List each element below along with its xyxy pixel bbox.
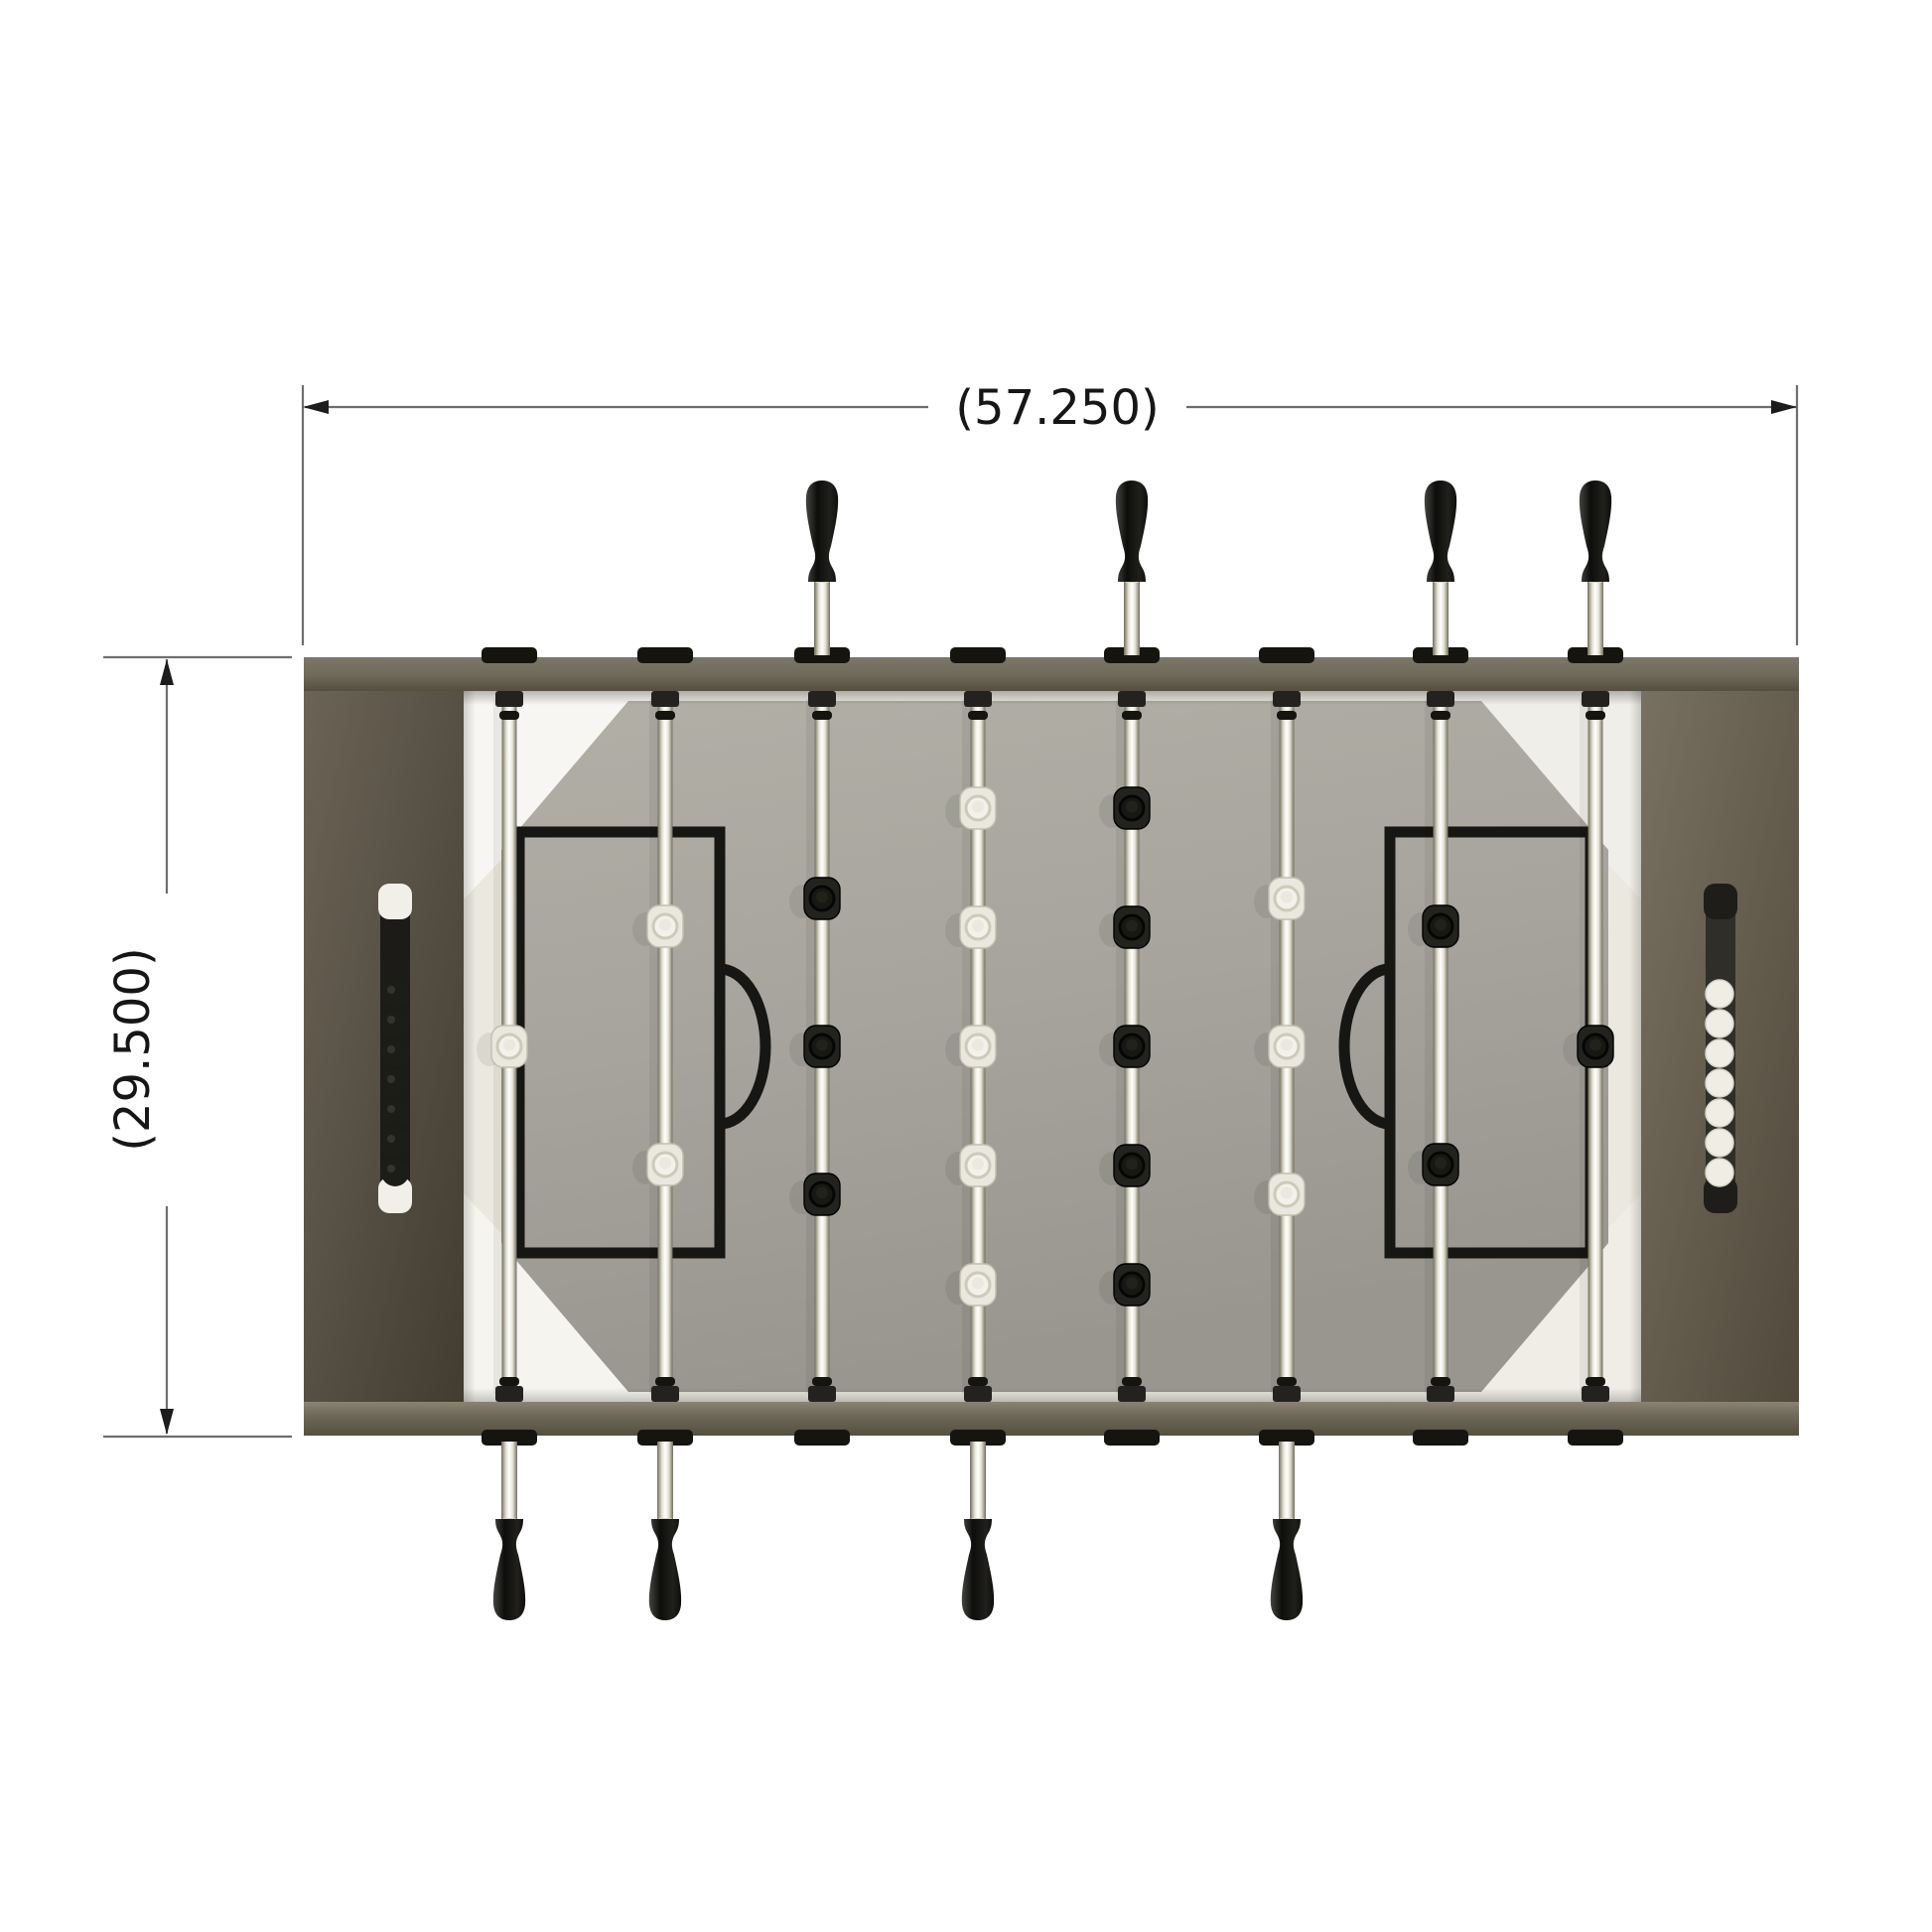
rod-collar [812, 711, 832, 720]
rod-collar [812, 1377, 832, 1386]
rod-mount [1118, 1386, 1146, 1402]
player-head-core [1589, 1039, 1601, 1051]
handle-shaft [970, 1442, 986, 1519]
foosball-ball-black [381, 1129, 409, 1157]
rod-collar [968, 711, 988, 720]
foosball-ball-black [381, 1099, 409, 1127]
foosball-ball-black [381, 1010, 409, 1037]
rod-collar [1431, 1377, 1450, 1386]
player-head-core [816, 892, 828, 903]
rod-collar [655, 711, 675, 720]
rod-shadow [649, 699, 658, 1394]
ball-highlight [387, 1165, 395, 1173]
player-head-core [972, 1039, 984, 1051]
rod-mount [495, 691, 523, 707]
rod-mount [808, 691, 836, 707]
handle-shaft [1124, 582, 1140, 655]
rod-collar [499, 711, 519, 720]
player-head-core [659, 1158, 671, 1170]
ball-highlight [387, 1075, 395, 1083]
handle-shaft [1587, 582, 1603, 655]
rod-mount [1582, 1386, 1609, 1402]
height-dimension-label: (29.500) [105, 947, 161, 1151]
handle-shaft [1279, 1442, 1295, 1519]
rod-bar [1434, 691, 1449, 1402]
rod-handle-top [1425, 481, 1456, 582]
player-head-core [1281, 892, 1293, 903]
rod-collar [1277, 711, 1297, 720]
rod-bar [658, 691, 673, 1402]
rod-bushing [950, 647, 1006, 663]
rod-mount [1273, 691, 1301, 707]
rod-mount [964, 691, 992, 707]
ball-highlight [387, 1016, 395, 1024]
ball-highlight [387, 1045, 395, 1053]
rail-shadow [464, 691, 1641, 705]
arrowhead-up [160, 659, 174, 685]
foosball-ball-white [1706, 1129, 1733, 1157]
foosball-ball-white [1706, 1069, 1733, 1097]
foosball-ball-black [381, 1159, 409, 1186]
player-head-core [1126, 1278, 1138, 1290]
ball-highlight [387, 1135, 395, 1143]
rod-handle-top [1116, 481, 1148, 582]
handle-shaft [657, 1442, 673, 1519]
player-head-core [1126, 920, 1138, 932]
player-head-core [659, 919, 671, 931]
rod-collar [1122, 1377, 1142, 1386]
handle-shaft [501, 1442, 517, 1519]
ball-highlight [387, 1105, 395, 1113]
rod-mount [964, 1386, 992, 1402]
player-head-core [503, 1039, 515, 1051]
rod-bushing [482, 647, 537, 663]
rod-collar [968, 1377, 988, 1386]
player-head-core [1126, 1039, 1138, 1051]
ball-return-left [378, 884, 412, 1213]
rod-bushing [794, 1430, 850, 1446]
foosball-ball-white [1706, 1159, 1733, 1186]
panel-shadow [1629, 691, 1641, 1402]
arrowhead-left [303, 400, 329, 414]
rod-collar [655, 1377, 675, 1386]
width-dimension-label: (57.250) [955, 380, 1159, 436]
rod-mount [1427, 691, 1454, 707]
foosball-table [304, 481, 1799, 1620]
player-head-core [1126, 1159, 1138, 1171]
rod-mount [495, 1386, 523, 1402]
player-head-core [972, 1278, 984, 1290]
foosball-ball-black [381, 1039, 409, 1067]
rod-handle-top [806, 481, 838, 582]
player-head-core [972, 801, 984, 813]
rod-mount [808, 1386, 836, 1402]
rod-handle-top [1580, 481, 1611, 582]
rod-shadow [1425, 699, 1434, 1394]
foosball-ball-white [1706, 1039, 1733, 1067]
player-head-core [816, 1039, 828, 1051]
foosball-ball-black [381, 1069, 409, 1097]
player-head-core [1281, 1187, 1293, 1199]
rod-handle-bottom [649, 1519, 681, 1620]
arrowhead-right [1771, 400, 1797, 414]
ball-return-right [1704, 884, 1737, 1213]
foosball-ball-white [1706, 1099, 1733, 1127]
rod-bushing [1259, 647, 1314, 663]
rod-bushing [1104, 1430, 1160, 1446]
drawing-canvas: (57.250) (29.500) [0, 0, 1932, 1932]
rod-collar [1586, 1377, 1605, 1386]
rod-mount [1427, 1386, 1454, 1402]
player-head-core [1126, 801, 1138, 813]
rod-mount [1582, 691, 1609, 707]
rod-mount [1118, 691, 1146, 707]
handle-shaft [1433, 582, 1449, 655]
rod-collar [499, 1377, 519, 1386]
foosball-ball-white [1706, 1010, 1733, 1037]
rod-mount [651, 691, 679, 707]
rod-collar [1431, 711, 1450, 720]
slot-cap [378, 884, 412, 919]
rod-bushing [637, 647, 693, 663]
player-head-core [816, 1187, 828, 1199]
player-head-core [972, 1159, 984, 1171]
foosball-ball-white [1706, 980, 1733, 1008]
rod-mount [651, 1386, 679, 1402]
rod-bushing [1568, 1430, 1623, 1446]
rod-handle-bottom [493, 1519, 525, 1620]
handle-shaft [814, 582, 830, 655]
foosball-table-top-view-drawing: (57.250) (29.500) [0, 0, 1932, 1932]
rod-bushing [1413, 1430, 1468, 1446]
rod-handle-bottom [962, 1519, 994, 1620]
slot-cap [1704, 884, 1737, 919]
rod-collar [1122, 711, 1142, 720]
player-head-core [972, 920, 984, 932]
rod-handle-bottom [1271, 1519, 1303, 1620]
rod-mount [1273, 1386, 1301, 1402]
player-head-core [1281, 1039, 1293, 1051]
panel-shadow [464, 691, 476, 1402]
rod-collar [1586, 711, 1605, 720]
ball-highlight [387, 986, 395, 994]
rod-collar [1277, 1377, 1297, 1386]
player-head-core [1435, 919, 1447, 931]
arrowhead-down [160, 1409, 174, 1435]
foosball-ball-black [381, 980, 409, 1008]
rail-shadow [464, 1388, 1641, 1402]
player-head-core [1435, 1158, 1447, 1170]
